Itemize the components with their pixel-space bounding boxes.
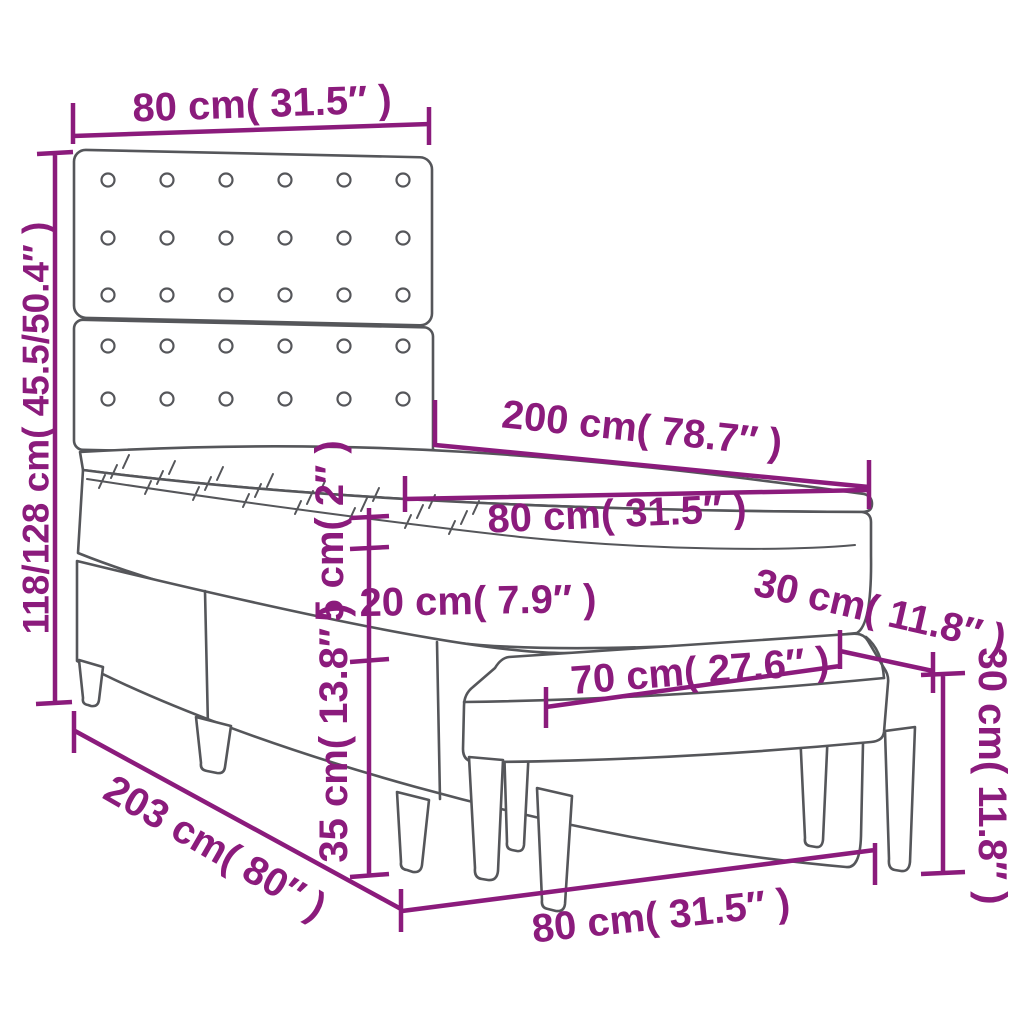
headboard-bottom-panel bbox=[74, 320, 433, 458]
dim-label-headboard-width: 80 cm( 31.5″ ) bbox=[132, 77, 393, 130]
dim-line-bench-height bbox=[921, 673, 965, 874]
tufting-button bbox=[279, 393, 292, 406]
tufting-button bbox=[279, 232, 292, 245]
tufting-button bbox=[161, 232, 174, 245]
tufting-button bbox=[220, 393, 233, 406]
tufting-button bbox=[161, 174, 174, 187]
tufting-button bbox=[397, 340, 410, 353]
tufting-button bbox=[220, 232, 233, 245]
headboard-top-panel bbox=[74, 150, 432, 326]
tufting-button bbox=[279, 174, 292, 187]
headboard bbox=[74, 150, 433, 458]
tufting-button bbox=[338, 393, 351, 406]
tufting-button bbox=[397, 174, 410, 187]
dim-label-bench-height: 30 cm( 11.8″ ) bbox=[970, 647, 1014, 904]
tufting-button bbox=[102, 340, 115, 353]
tufting-button bbox=[397, 289, 410, 302]
bed-leg bbox=[196, 717, 231, 773]
tufting-button bbox=[397, 393, 410, 406]
bed-leg bbox=[397, 792, 429, 872]
tufting-button bbox=[338, 232, 351, 245]
tufting-button bbox=[220, 289, 233, 302]
dim-label-base-height: 35 cm( 13.8″ ) bbox=[312, 603, 356, 862]
tufting-button bbox=[338, 289, 351, 302]
tufting-button bbox=[102, 289, 115, 302]
tufting-button bbox=[397, 232, 410, 245]
tufting-button bbox=[279, 340, 292, 353]
tufting-button bbox=[338, 340, 351, 353]
tufting-button bbox=[161, 340, 174, 353]
dim-label-total-height: 118/128 cm( 45.5/50.4″ ) bbox=[16, 222, 57, 635]
tufting-button bbox=[161, 289, 174, 302]
bed-with-bench-dimension-diagram: 80 cm( 31.5″ ) 118/128 cm( 45.5/50.4″ ) … bbox=[0, 0, 1024, 1024]
tufting-button bbox=[102, 232, 115, 245]
tufting-button bbox=[279, 289, 292, 302]
bench-front-leg bbox=[469, 757, 503, 880]
tufting-button bbox=[220, 174, 233, 187]
tufting-button bbox=[102, 393, 115, 406]
tufting-button bbox=[161, 393, 174, 406]
tufting-button bbox=[338, 174, 351, 187]
dim-label-topper-height: 5 cm( 2″ ) bbox=[308, 440, 352, 621]
dim-label-total-length: 203 cm( 80″ ) bbox=[97, 767, 334, 929]
tufting-button bbox=[102, 174, 115, 187]
bed-leg bbox=[79, 660, 103, 706]
tufting-button bbox=[220, 340, 233, 353]
bench-front-leg bbox=[885, 727, 915, 871]
dim-label-mattress-height: 20 cm( 7.9″ ) bbox=[359, 577, 597, 625]
